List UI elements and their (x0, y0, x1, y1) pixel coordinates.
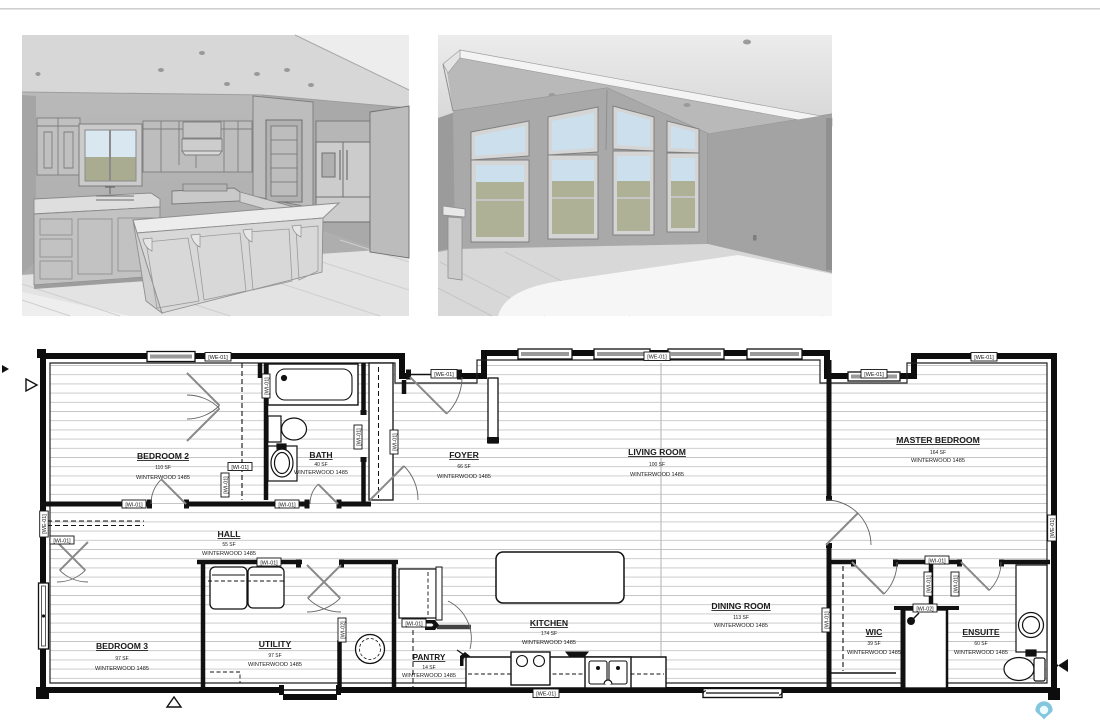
svg-text:DINING ROOM: DINING ROOM (711, 601, 770, 611)
svg-text:[WI-01]: [WI-01] (265, 377, 271, 395)
svg-text:55 SF: 55 SF (222, 542, 235, 548)
svg-text:[WE-01]: [WE-01] (864, 372, 884, 378)
svg-text:[WI-01]: [WI-01] (927, 575, 933, 593)
svg-text:[WI-01]: [WI-01] (825, 611, 831, 629)
svg-text:40 SF: 40 SF (314, 462, 327, 468)
svg-text:UTILITY: UTILITY (259, 639, 292, 649)
svg-text:[WI-02]: [WI-02] (916, 607, 934, 613)
svg-text:[WE-01]: [WE-01] (42, 514, 48, 534)
svg-text:[WI-01]: [WI-01] (928, 559, 946, 565)
svg-text:39 SF: 39 SF (867, 641, 880, 647)
svg-text:[WI-01]: [WI-01] (224, 476, 230, 494)
svg-text:[WI-02]: [WI-02] (341, 621, 347, 639)
svg-text:100 SF: 100 SF (649, 462, 665, 468)
svg-text:PANTRY: PANTRY (413, 653, 446, 662)
svg-text:60 SF: 60 SF (974, 641, 987, 647)
svg-text:WINTERWOOD 1485: WINTERWOOD 1485 (202, 551, 256, 557)
svg-text:[WE-01]: [WE-01] (208, 355, 228, 361)
svg-text:[WI-01]: [WI-01] (405, 622, 423, 628)
svg-text:110 SF: 110 SF (155, 465, 171, 471)
svg-text:[WE-01]: [WE-01] (536, 692, 556, 698)
svg-text:KITCHEN: KITCHEN (530, 618, 568, 628)
svg-text:WINTERWOOD 1485: WINTERWOOD 1485 (136, 475, 190, 481)
svg-text:14 SF: 14 SF (422, 665, 435, 671)
svg-text:[WE-01]: [WE-01] (647, 355, 667, 361)
svg-text:[WI-01]: [WI-01] (231, 465, 249, 471)
svg-text:[WI-01]: [WI-01] (954, 575, 960, 593)
svg-text:[WI-01]: [WI-01] (53, 539, 71, 545)
svg-text:66 SF: 66 SF (457, 464, 470, 470)
svg-text:WINTERWOOD 1485: WINTERWOOD 1485 (95, 666, 149, 672)
svg-text:MASTER BEDROOM: MASTER BEDROOM (896, 435, 980, 445)
svg-text:97 SF: 97 SF (268, 653, 281, 659)
svg-text:WINTERWOOD 1485: WINTERWOOD 1485 (522, 640, 576, 646)
svg-text:[WI-01]: [WI-01] (393, 433, 399, 451)
svg-text:WINTERWOOD 1485: WINTERWOOD 1485 (911, 458, 965, 464)
svg-text:[WI-01]: [WI-01] (278, 503, 296, 509)
svg-text:174 SF: 174 SF (541, 631, 557, 637)
svg-text:WINTERWOOD 1485: WINTERWOOD 1485 (847, 650, 901, 656)
svg-text:WINTERWOOD 1485: WINTERWOOD 1485 (294, 470, 348, 476)
svg-text:LIVING ROOM: LIVING ROOM (628, 447, 686, 457)
svg-text:WINTERWOOD 1485: WINTERWOOD 1485 (714, 623, 768, 629)
svg-text:[WE-01]: [WE-01] (1050, 518, 1056, 538)
svg-text:ENSUITE: ENSUITE (962, 627, 1000, 637)
svg-text:164 SF: 164 SF (930, 450, 946, 456)
svg-text:WINTERWOOD 1485: WINTERWOOD 1485 (630, 472, 684, 478)
svg-text:BEDROOM 2: BEDROOM 2 (137, 451, 189, 461)
svg-text:BATH: BATH (309, 450, 332, 460)
svg-text:[WE-01]: [WE-01] (974, 355, 994, 361)
svg-text:FOYER: FOYER (449, 450, 479, 460)
svg-text:WIC: WIC (866, 627, 883, 637)
svg-text:HALL: HALL (218, 529, 241, 539)
svg-text:[WI-01]: [WI-01] (357, 428, 363, 446)
svg-text:[WE-01]: [WE-01] (434, 372, 454, 378)
svg-text:WINTERWOOD 1485: WINTERWOOD 1485 (437, 474, 491, 480)
svg-text:WINTERWOOD 1485: WINTERWOOD 1485 (402, 673, 456, 679)
svg-text:[WI-01]: [WI-01] (125, 503, 143, 509)
svg-text:97 SF: 97 SF (115, 656, 128, 662)
svg-text:[WI-01]: [WI-01] (260, 561, 278, 567)
svg-text:WINTERWOOD 1485: WINTERWOOD 1485 (954, 650, 1008, 656)
svg-text:BEDROOM 3: BEDROOM 3 (96, 641, 148, 651)
svg-text:WINTERWOOD 1485: WINTERWOOD 1485 (248, 662, 302, 668)
svg-text:113 SF: 113 SF (733, 615, 749, 621)
